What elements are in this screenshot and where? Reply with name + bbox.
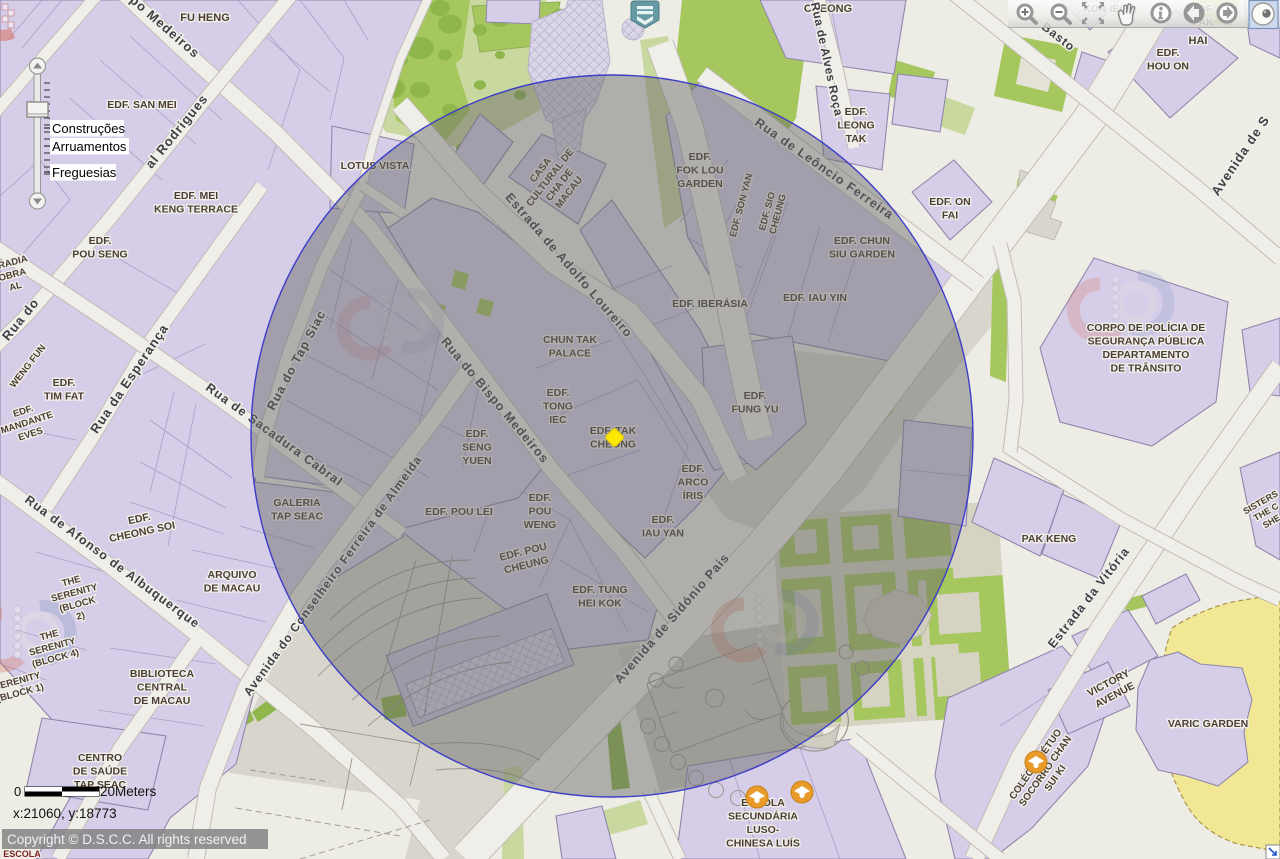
svg-text:Copyright © D.S.C.C. All right: Copyright © D.S.C.C. All rights reserved <box>7 832 247 847</box>
svg-text:Construções: Construções <box>52 121 125 136</box>
svg-text:Arruamentos: Arruamentos <box>52 139 127 154</box>
svg-text:20Meters: 20Meters <box>100 784 157 799</box>
svg-text:VARIC GARDEN: VARIC GARDEN <box>1168 718 1248 730</box>
svg-text:FU HENG: FU HENG <box>180 12 230 24</box>
svg-text:HAI: HAI <box>1189 35 1208 47</box>
svg-text:ESCOLA: ESCOLA <box>3 849 41 859</box>
svg-text:Freguesias: Freguesias <box>52 165 117 180</box>
svg-text:0: 0 <box>14 784 21 799</box>
svg-text:BIBLIOTECACENTRALDE MACAU: BIBLIOTECACENTRALDE MACAU <box>130 668 195 707</box>
svg-text:PAK KENG: PAK KENG <box>1022 533 1077 545</box>
svg-text:ARQUIVODE MACAU: ARQUIVODE MACAU <box>204 569 261 595</box>
svg-text:EDF. SAN MEI: EDF. SAN MEI <box>107 99 177 111</box>
svg-text:x:21060, y:18773: x:21060, y:18773 <box>13 806 117 821</box>
